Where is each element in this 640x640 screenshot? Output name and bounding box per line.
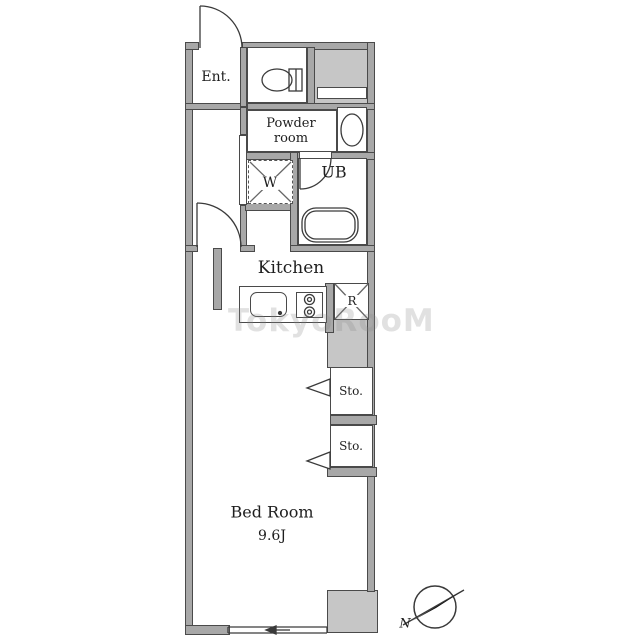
toilet-bowl-icon <box>262 69 292 91</box>
label-powder-line1: Powder <box>266 116 315 131</box>
label-entrance: Ent. <box>201 69 230 85</box>
storage-door-marker <box>307 379 330 396</box>
watermark-text: TokyoRooM <box>228 303 435 339</box>
washbasin-icon <box>341 114 363 146</box>
storage-door-marker <box>307 452 330 469</box>
label-bedroom-size: 9.6J <box>258 528 286 544</box>
hall-door-arc <box>197 203 241 247</box>
compass-needle-line <box>403 590 464 625</box>
label-storage-2: Sto. <box>339 439 363 453</box>
floor-plan: Ent. Powder room W UB Kitchen R Sto. Sto… <box>0 0 640 640</box>
label-unit-bath: UB <box>321 163 346 182</box>
label-powder-line2: room <box>266 131 315 146</box>
label-powder-room: Powder room <box>266 116 315 146</box>
compass-north-label: N <box>399 617 410 632</box>
label-washer: W <box>261 176 279 190</box>
entrance-door-arc <box>200 6 242 48</box>
label-kitchen: Kitchen <box>258 258 324 278</box>
label-bedroom: Bed Room <box>230 503 313 522</box>
label-storage-1: Sto. <box>339 384 363 398</box>
